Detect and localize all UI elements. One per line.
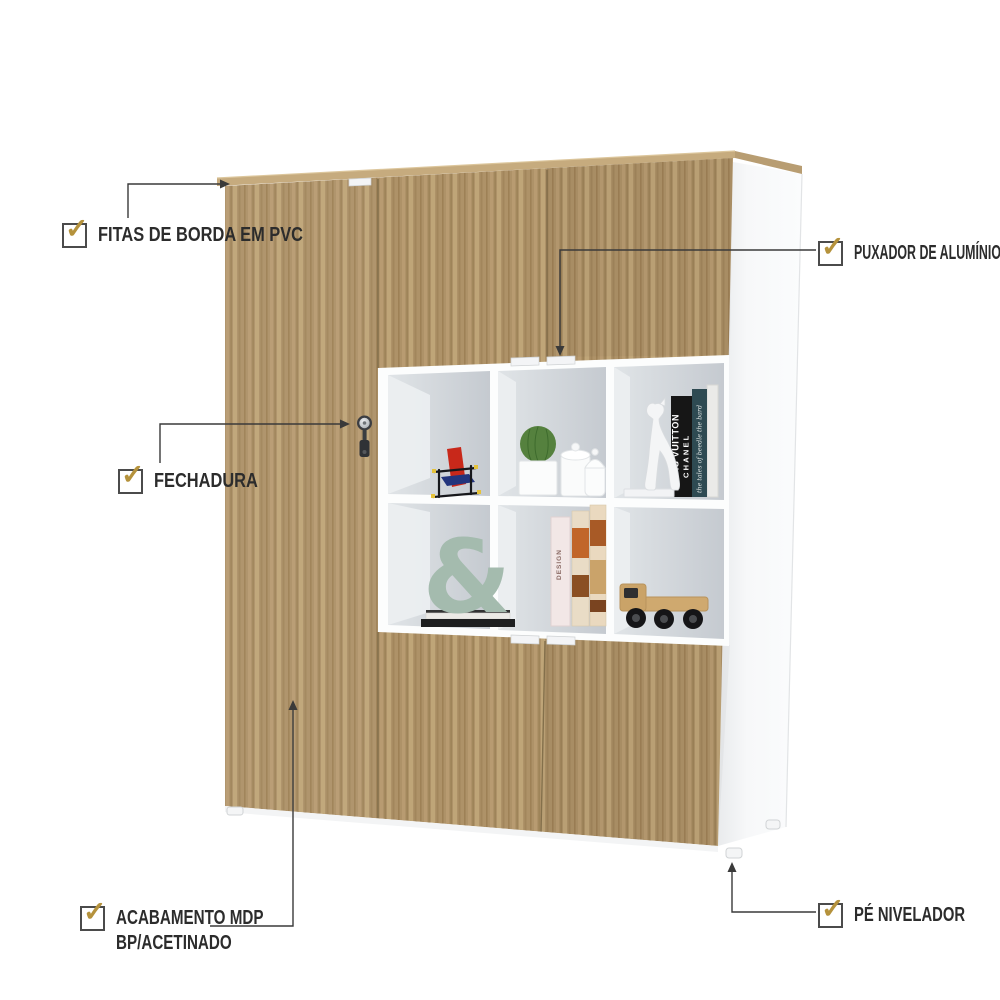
handle-upper-right [547, 356, 575, 365]
books-bottom: DESIGN [551, 505, 606, 626]
handle-lower-left [511, 635, 539, 644]
canister-jars [561, 443, 605, 496]
checkbox-icon: ✓ [80, 906, 105, 931]
callout-finish-line1: ACABAMENTO MDP [116, 906, 263, 931]
callout-finish: ✓ ACABAMENTO MDP BP/ACETINADO [80, 905, 310, 956]
callout-finish-label: ACABAMENTO MDP BP/ACETINADO [116, 906, 263, 956]
check-icon: ✓ [821, 895, 844, 923]
callout-handle: ✓ PUXADOR DE ALUMÍNIO [818, 240, 1000, 266]
book-white [707, 385, 718, 497]
check-icon: ✓ [83, 898, 106, 926]
book-pink-spine-text: DESIGN [556, 549, 563, 580]
leader-edge-banding [128, 184, 221, 218]
open-shelf: LOUIS VUITTON CHANEL the tales of beedle… [378, 355, 729, 646]
top-right-door [547, 158, 733, 357]
leveling-foot-back [766, 820, 780, 829]
callout-edge-banding-label: FITAS DE BORDA EM PVC [98, 223, 303, 248]
cactus-pot [519, 426, 557, 495]
ampersand-text: & [423, 518, 512, 637]
handle-top-left-door [349, 178, 371, 186]
leader-foot [732, 871, 816, 912]
callout-handle-label: PUXADOR DE ALUMÍNIO [854, 241, 1000, 266]
callout-lock: ✓ FECHADURA [118, 468, 281, 494]
checkbox-icon: ✓ [118, 469, 143, 494]
book-teal-spine-text: the tales of beedle the bard [697, 405, 704, 493]
callout-leveling-foot: ✓ PÉ NIVELADOR [818, 902, 1000, 928]
check-icon: ✓ [821, 233, 844, 261]
checkbox-icon: ✓ [818, 241, 843, 266]
book-black-spine-text-2: CHANEL [682, 434, 691, 478]
callout-leveling-foot-label: PÉ NIVELADOR [854, 903, 965, 928]
check-icon: ✓ [65, 215, 88, 243]
check-icon: ✓ [121, 461, 144, 489]
ampersand-decor: & [421, 518, 515, 637]
leveling-foot-left [227, 807, 243, 815]
bottom-right-door [541, 638, 730, 846]
checkbox-icon: ✓ [818, 903, 843, 928]
checkbox-icon: ✓ [62, 223, 87, 248]
book-striped-2 [590, 505, 606, 626]
handle-lower-right [547, 636, 575, 645]
product-diagram: LOUIS VUITTON CHANEL the tales of beedle… [0, 0, 1000, 1000]
book-striped-1 [572, 511, 589, 626]
leveling-foot-right [726, 848, 742, 858]
callout-edge-banding: ✓ FITAS DE BORDA EM PVC [62, 222, 348, 248]
left-door [225, 178, 378, 818]
handle-upper-left [511, 357, 539, 366]
cabinet-illustration: LOUIS VUITTON CHANEL the tales of beedle… [0, 0, 1000, 1000]
callout-lock-label: FECHADURA [154, 469, 258, 494]
callout-finish-line2: BP/ACETINADO [116, 931, 263, 956]
